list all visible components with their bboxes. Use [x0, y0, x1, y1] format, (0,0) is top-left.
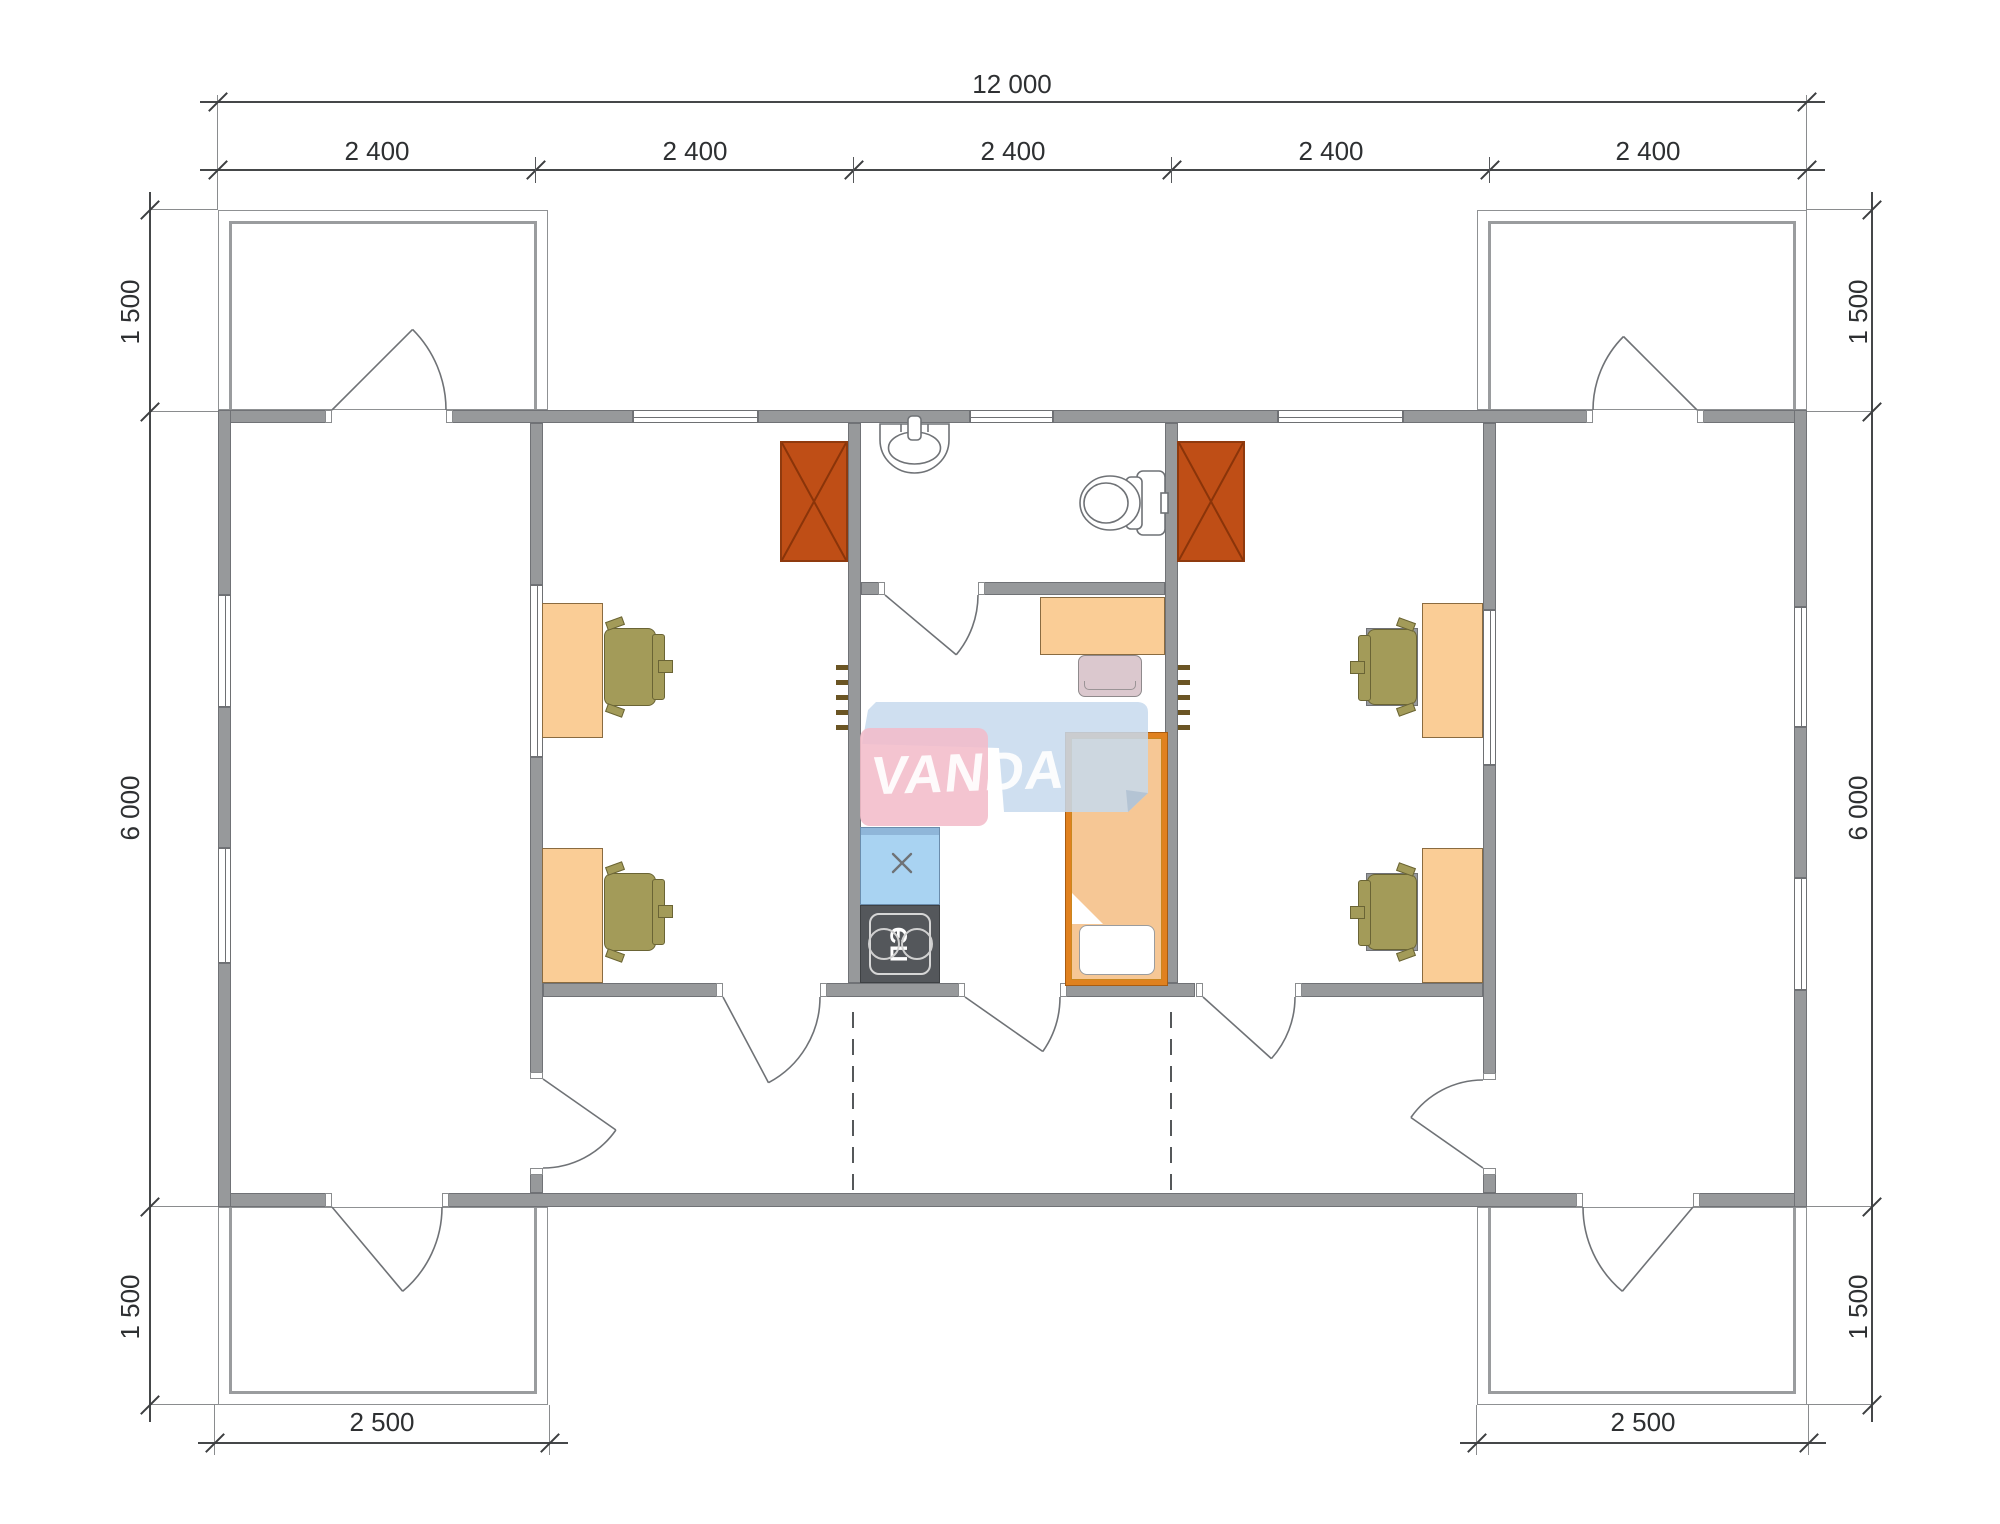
watermark-text: VANDA	[868, 739, 1068, 808]
floor-plan: ПЭ	[0, 0, 2000, 1524]
watermark-fold	[1126, 790, 1148, 812]
